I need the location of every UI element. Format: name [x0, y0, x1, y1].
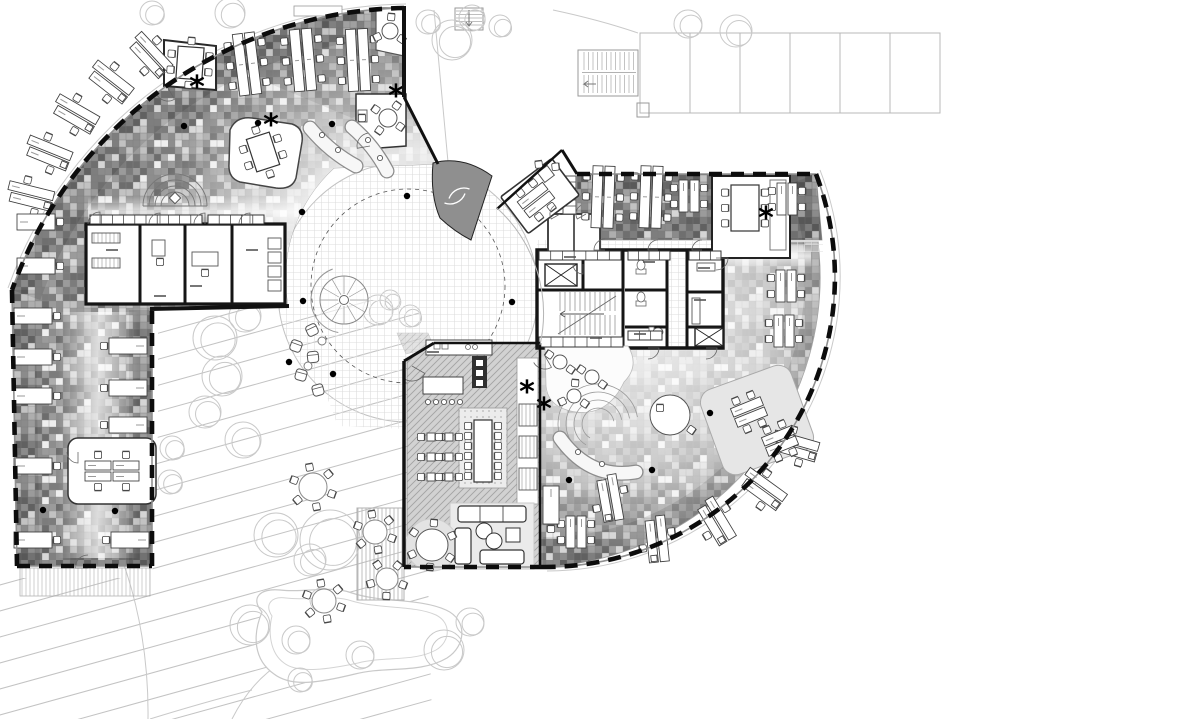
chair — [761, 189, 768, 196]
structural-column — [566, 477, 572, 483]
structural-column — [404, 193, 410, 199]
chair — [323, 469, 333, 479]
chair — [383, 592, 390, 599]
chair — [767, 274, 774, 281]
chair — [327, 489, 336, 498]
chair — [455, 473, 462, 480]
chair — [229, 82, 237, 90]
tree — [680, 15, 702, 37]
chair — [56, 262, 63, 269]
room-fixture — [92, 233, 120, 243]
room-fixture — [152, 240, 165, 256]
chair — [100, 421, 107, 428]
room-label-mark — [427, 351, 439, 353]
chair — [53, 536, 60, 543]
room-label-mark — [106, 249, 118, 251]
outdoor-table — [299, 473, 327, 501]
tree — [236, 306, 261, 331]
tree — [164, 475, 183, 494]
chair — [102, 536, 109, 543]
chair — [323, 615, 331, 623]
chair — [53, 312, 60, 319]
chair — [358, 114, 365, 121]
workstation-desk — [20, 127, 77, 179]
chair — [557, 536, 564, 543]
cafe-table — [427, 453, 435, 461]
chair — [280, 38, 288, 46]
chair — [257, 38, 265, 46]
room-fixture — [92, 258, 120, 268]
room-label-mark — [154, 295, 166, 297]
buffet-rack — [519, 468, 537, 490]
chair — [226, 62, 234, 70]
team-room — [68, 438, 156, 504]
chair — [430, 519, 438, 527]
chair — [582, 193, 589, 200]
tree — [202, 356, 242, 396]
chair — [721, 189, 728, 196]
chair — [371, 55, 379, 63]
chair — [167, 66, 175, 74]
site-path-line — [150, 690, 252, 719]
stool — [335, 147, 340, 152]
round-table — [553, 355, 567, 369]
stool — [425, 399, 430, 404]
chair — [587, 520, 594, 527]
chair — [156, 258, 163, 265]
chair — [284, 78, 292, 86]
chair — [464, 442, 471, 449]
locker-bank — [90, 215, 202, 224]
chair — [547, 525, 554, 532]
chair — [616, 194, 623, 201]
tree — [146, 6, 165, 25]
chair — [122, 483, 129, 490]
tree — [674, 10, 702, 38]
side-table — [318, 337, 326, 345]
tree — [416, 10, 440, 34]
chair — [670, 200, 677, 207]
locker-bank — [539, 337, 623, 347]
room-fixture — [692, 298, 700, 324]
chair — [23, 176, 32, 185]
side-table — [304, 362, 312, 370]
floor-plan-canvas: ****** — [0, 0, 1200, 719]
stool — [441, 399, 446, 404]
tree — [166, 441, 185, 460]
chair — [94, 451, 101, 458]
lounge-chair — [294, 368, 307, 381]
outdoor-table-group — [290, 463, 337, 511]
buffet-rack — [519, 436, 537, 458]
chair — [337, 57, 345, 65]
pergola-canopy — [637, 33, 940, 117]
chair — [656, 404, 663, 411]
room-fixture — [192, 252, 218, 266]
room-label-mark — [634, 333, 646, 335]
structural-column — [112, 508, 118, 514]
chair — [368, 510, 376, 518]
sofa — [455, 528, 471, 564]
locker-bank — [539, 251, 621, 260]
structural-column — [40, 507, 46, 513]
tree — [160, 436, 184, 460]
cafe-table — [445, 473, 453, 481]
tree — [432, 20, 472, 60]
tree — [196, 402, 221, 427]
chair — [455, 453, 462, 460]
chair — [338, 77, 346, 85]
chair — [56, 218, 63, 225]
structural-column — [255, 120, 261, 126]
chair — [312, 503, 320, 511]
chair — [53, 462, 60, 469]
chair — [582, 213, 589, 220]
chair — [100, 342, 107, 349]
chair — [630, 213, 637, 220]
chair — [571, 379, 579, 387]
chair — [387, 13, 395, 21]
stool — [377, 155, 382, 160]
room-label-mark — [643, 261, 655, 263]
chair — [494, 452, 501, 459]
chair — [797, 274, 804, 281]
room-label-mark — [564, 256, 576, 258]
chair — [435, 453, 442, 460]
sofa — [458, 506, 526, 522]
cafe-table — [445, 453, 453, 461]
chair — [262, 78, 270, 86]
chair — [767, 290, 774, 297]
stool — [575, 449, 580, 454]
chair — [260, 58, 268, 66]
chair — [630, 193, 637, 200]
room-fixture — [268, 266, 281, 277]
plaza-curve-edge — [553, 10, 638, 33]
chair — [494, 472, 501, 479]
chair — [765, 335, 772, 342]
room-fixture — [268, 238, 281, 249]
pergola-post — [637, 103, 649, 117]
round-table — [382, 23, 398, 39]
lounge-chair — [311, 383, 324, 396]
cafe-table — [427, 473, 435, 481]
chair — [670, 184, 677, 191]
chair — [721, 220, 728, 227]
chair — [53, 353, 60, 360]
chair — [372, 75, 380, 83]
structural-column — [181, 123, 187, 129]
chair — [318, 75, 326, 83]
round-table — [585, 370, 599, 384]
tree — [221, 3, 244, 26]
chair — [464, 452, 471, 459]
chair — [464, 462, 471, 469]
chair — [464, 432, 471, 439]
chair — [455, 433, 462, 440]
asterisk-marker: * — [263, 108, 279, 143]
chair — [587, 536, 594, 543]
structural-column — [330, 371, 336, 377]
entrance-walk-edge — [434, 10, 448, 162]
chair — [188, 37, 196, 45]
cafe-table-group — [435, 453, 462, 461]
tree — [494, 19, 511, 36]
tree — [201, 323, 235, 357]
chair — [798, 203, 805, 210]
cafe-table — [445, 433, 453, 441]
toilet-fixture — [636, 292, 646, 306]
tree — [439, 26, 470, 57]
structural-column — [649, 467, 655, 473]
stool — [319, 132, 324, 137]
chair — [765, 319, 772, 326]
chair — [336, 37, 344, 45]
stool — [449, 399, 454, 404]
tree — [462, 613, 484, 635]
cafe-table-group — [435, 473, 462, 481]
chair — [201, 269, 208, 276]
room-label-mark — [698, 267, 710, 269]
outdoor-table — [363, 520, 387, 544]
chair — [494, 442, 501, 449]
room-fixture — [268, 252, 281, 263]
structural-column — [707, 410, 713, 416]
stool — [433, 399, 438, 404]
chair — [700, 184, 707, 191]
asterisk-marker: * — [758, 201, 774, 236]
chair — [435, 433, 442, 440]
chair — [798, 187, 805, 194]
asterisk-marker: * — [388, 79, 404, 114]
chair — [316, 55, 324, 63]
bar-south-terrace — [20, 568, 150, 596]
chair — [768, 187, 775, 194]
chair — [168, 50, 176, 58]
chair — [317, 579, 325, 587]
tree — [456, 608, 484, 636]
stool — [599, 461, 604, 466]
chair — [205, 68, 213, 76]
chair — [122, 451, 129, 458]
wall-right-wing-northwest — [562, 150, 577, 174]
structural-column — [509, 299, 515, 305]
meeting-table — [474, 420, 492, 482]
pond-outline — [256, 589, 462, 682]
chair — [305, 463, 313, 471]
exterior-stair-northeast — [578, 50, 638, 96]
chair — [592, 504, 600, 512]
meeting-table — [731, 185, 759, 231]
outdoor-table — [376, 568, 398, 590]
chair — [464, 422, 471, 429]
asterisk-marker: * — [189, 70, 205, 105]
room-label-mark — [190, 285, 202, 287]
chair — [43, 132, 52, 141]
room-fixture — [268, 280, 281, 291]
chair — [94, 483, 101, 490]
elevator-shaft — [545, 264, 577, 286]
structural-column — [299, 209, 305, 215]
chair — [435, 473, 442, 480]
sofa-group — [455, 506, 526, 564]
chair — [374, 546, 382, 554]
asterisk-marker: * — [536, 392, 552, 427]
kitchen-island — [423, 377, 463, 394]
sofa — [480, 550, 524, 564]
round-table — [650, 395, 690, 435]
workstation-desk — [46, 86, 104, 141]
chair — [366, 579, 375, 588]
side-table — [506, 528, 520, 542]
tree — [140, 1, 164, 25]
chair — [664, 214, 671, 221]
locker-bank — [628, 251, 670, 260]
chair — [53, 392, 60, 399]
round-table — [567, 389, 581, 403]
workstation-desk — [80, 53, 139, 111]
chair — [45, 165, 54, 174]
tree — [310, 519, 357, 566]
tree — [422, 15, 441, 34]
chair — [282, 58, 290, 66]
chair — [100, 384, 107, 391]
chair — [552, 163, 560, 171]
asterisk-marker: * — [519, 375, 535, 410]
chair — [494, 462, 501, 469]
stool — [365, 137, 370, 142]
chair — [700, 200, 707, 207]
chair — [494, 432, 501, 439]
floor-plan-drawing: ****** — [0, 0, 1200, 719]
chair — [417, 433, 424, 440]
stool — [457, 399, 462, 404]
chair — [417, 473, 424, 480]
coffee-table — [486, 533, 502, 549]
locker-bank — [208, 215, 264, 224]
chair — [794, 458, 803, 467]
cafe-table — [427, 433, 435, 441]
tree — [158, 470, 182, 494]
chair — [314, 35, 322, 43]
chair — [721, 204, 728, 211]
structural-column — [286, 359, 292, 365]
room-label-mark — [590, 337, 602, 339]
locker-bank — [689, 251, 721, 260]
chair — [464, 472, 471, 479]
cafe-table-group — [435, 433, 462, 441]
chair — [620, 485, 628, 493]
room-label-mark — [694, 299, 706, 301]
chair — [616, 214, 623, 221]
room-label-mark — [246, 249, 258, 251]
elevator-shaft — [695, 328, 723, 346]
chair — [795, 319, 802, 326]
structural-column — [329, 121, 335, 127]
outdoor-table — [312, 589, 336, 613]
structural-column — [300, 298, 306, 304]
locker-bank — [628, 331, 662, 340]
chair — [417, 453, 424, 460]
lounge-chair — [307, 351, 319, 363]
chair — [797, 290, 804, 297]
core-corridor-strip — [669, 252, 685, 346]
chair — [664, 194, 671, 201]
chair — [494, 422, 501, 429]
round-table — [416, 529, 448, 561]
tree — [489, 15, 511, 37]
chair — [795, 335, 802, 342]
